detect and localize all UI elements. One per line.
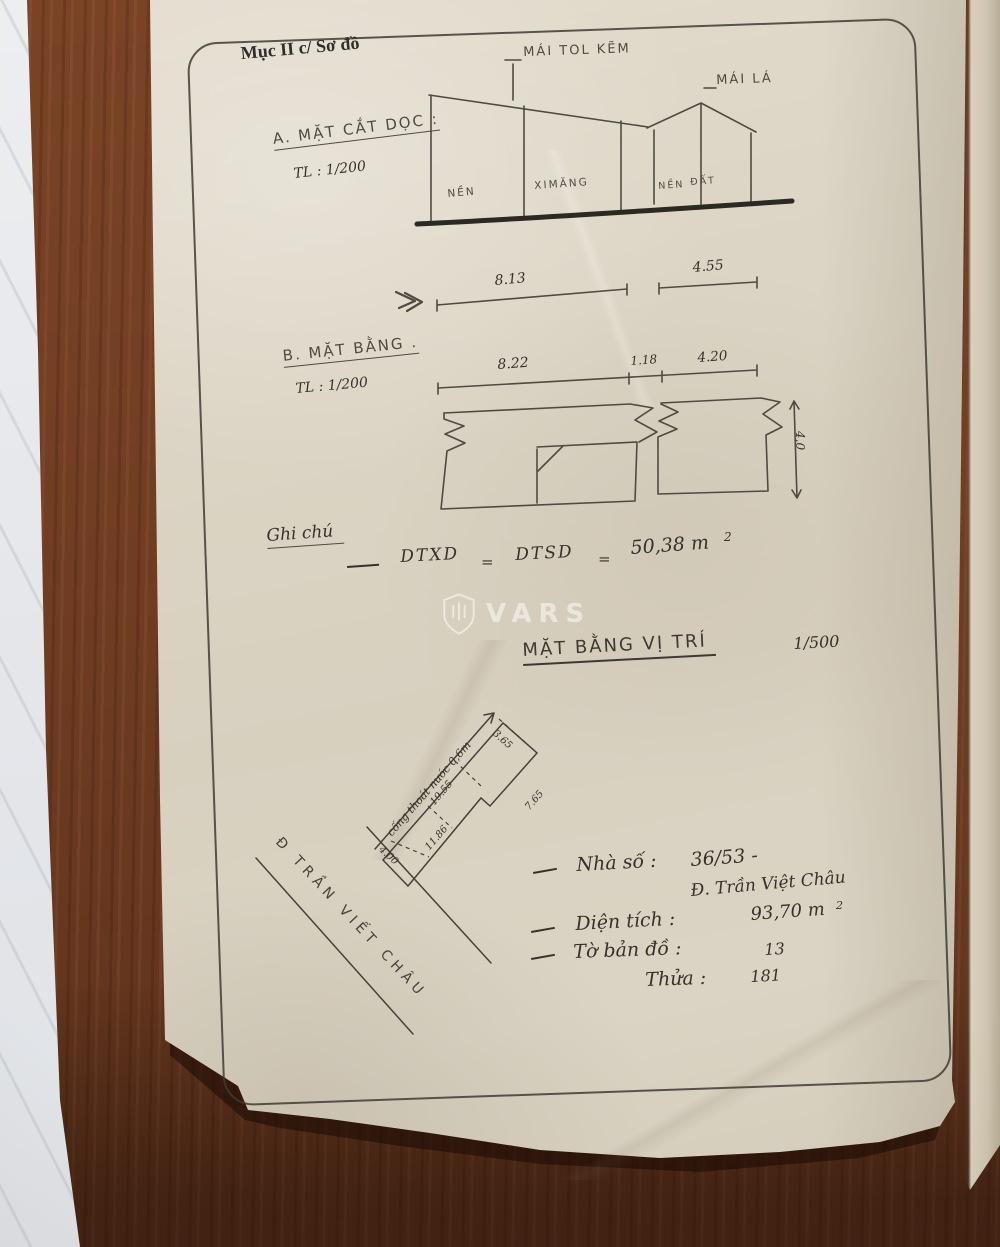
formula-dtsd: DTSD (515, 544, 574, 564)
formula-eq1: = (481, 555, 494, 570)
vars-watermark-text: VARS (486, 599, 591, 629)
floor-label-dat: ĐẤT (690, 176, 716, 187)
dimension-lines-plan (438, 365, 757, 394)
vars-shield-icon (441, 591, 477, 637)
roof-label-main: MÁI TOL KẼM (523, 42, 631, 59)
formula-area-value: 50,38 m (630, 534, 710, 558)
floor-label-nen-2: NỀN (658, 180, 685, 191)
note-parcel-label: Thửa : (645, 969, 707, 990)
note-map-sheet-label: Tờ bản đồ : (573, 939, 682, 962)
note-parcel-value: 181 (750, 967, 781, 985)
site-plan-scale: 1/500 (793, 634, 840, 652)
note-area-sup: 2 (836, 900, 843, 911)
note-area-value: 93,70 m (750, 901, 825, 924)
photo-of-property-diagram: Mục II c/ Sơ đồ A. MẶT CẮT DỌC : TL : 1/… (0, 0, 1000, 1247)
dim-8-22: 8.22 (497, 356, 529, 372)
dim-1-18: 1.18 (630, 353, 657, 367)
note-area-label: Diện tích : (575, 910, 676, 934)
dimension-lines-elevation (396, 277, 757, 311)
note-house-number-label: Nhà số : (576, 852, 657, 875)
dim-4-20: 4.20 (697, 350, 728, 366)
dim-8-13: 8.13 (494, 271, 526, 288)
formula-dtxd: DTXD (400, 546, 460, 566)
vars-watermark: VARS (441, 591, 591, 637)
dim-4-55: 4.55 (692, 258, 724, 275)
floor-plan-drawing (441, 398, 801, 509)
floor-label-nen: NỀN (447, 187, 476, 200)
roof-label-small: MÁI LÁ (716, 72, 773, 87)
formula-area-sup: 2 (724, 531, 732, 543)
dim-depth-4-0: 4.0 (794, 431, 806, 450)
formula-eq2: = (598, 552, 611, 567)
note-map-sheet-value: 13 (764, 941, 785, 958)
note-house-number-value: 36/53 - (690, 846, 758, 870)
